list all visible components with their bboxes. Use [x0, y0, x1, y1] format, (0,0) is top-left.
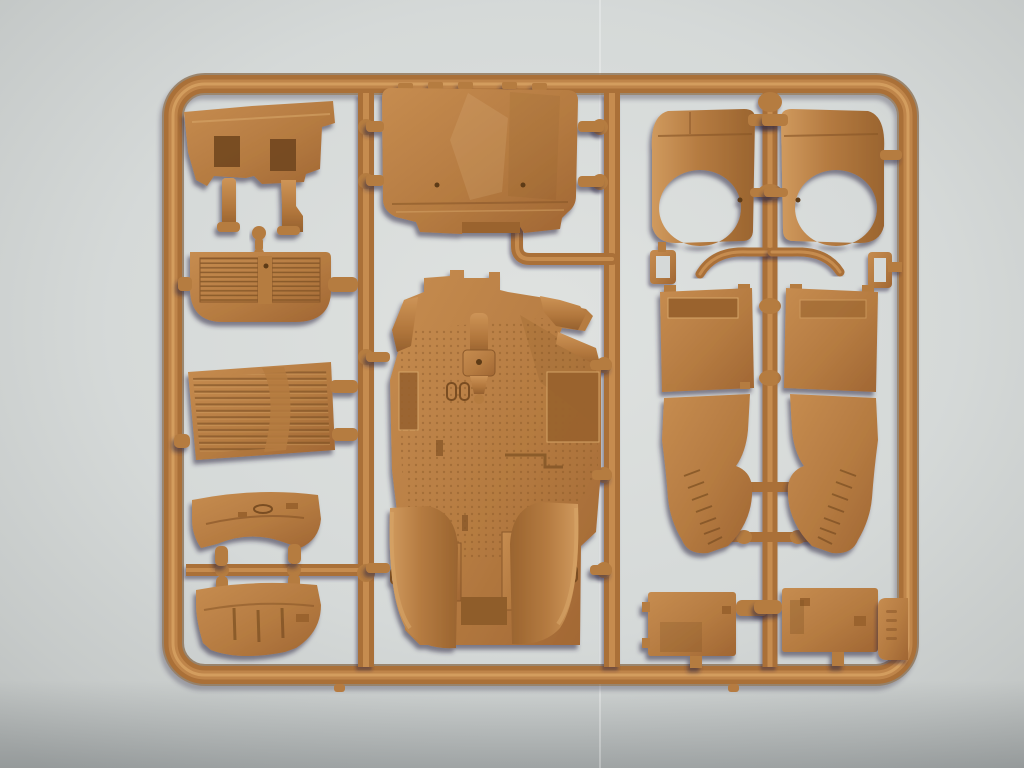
part-side-panel-left	[660, 284, 754, 553]
louver-gate	[332, 428, 358, 441]
firewall-opening	[214, 136, 240, 167]
center-recess	[461, 597, 507, 625]
firewall-foot	[277, 226, 300, 235]
fender-gate	[880, 150, 902, 160]
chassis-tick	[436, 440, 443, 456]
panel-tab	[664, 285, 676, 292]
hatch-gate	[690, 656, 702, 668]
grille-slats-right	[272, 258, 320, 302]
hatch-hinge	[642, 638, 650, 648]
grille-gate	[328, 277, 358, 292]
louver-gate	[174, 434, 190, 448]
hatch-gate	[832, 652, 844, 666]
body-gate	[578, 121, 604, 132]
part-side-panel-right	[784, 284, 878, 553]
gate-knob	[759, 298, 781, 314]
body-tab	[502, 82, 517, 89]
panel-right-slot	[800, 300, 866, 318]
chassis-gate	[592, 470, 612, 480]
chassis-wheelbox-right	[547, 372, 599, 442]
firewall-opening	[270, 139, 296, 171]
body-gate	[578, 176, 604, 187]
body-gate	[366, 121, 384, 132]
hull-lower-rib	[234, 608, 235, 640]
panel-tab	[666, 384, 676, 391]
chassis-gate	[590, 360, 612, 370]
gate-nub	[728, 684, 739, 692]
sprue	[173, 82, 908, 692]
body-hole	[521, 183, 526, 188]
body-gate	[366, 175, 384, 186]
fender-gate	[762, 114, 788, 126]
shackle-right-hole	[874, 258, 886, 282]
part-louvered-panel	[174, 362, 358, 460]
hull-gate	[288, 544, 301, 564]
fender-fr-hole	[796, 198, 801, 203]
panel-left-slot	[668, 298, 738, 318]
louver-slats	[193, 369, 330, 453]
body-tab	[458, 82, 473, 89]
chassis-gate	[590, 565, 612, 575]
chassis-gate	[366, 352, 390, 362]
grille-slats-left	[200, 258, 258, 302]
part-sprue-tag	[878, 598, 908, 660]
gate-knob	[759, 370, 781, 386]
hatch-latch	[854, 616, 866, 626]
steering-ball	[474, 394, 484, 404]
pin-head	[252, 226, 266, 240]
hull-lower-detail	[296, 614, 309, 622]
paper-bottom-shade	[0, 680, 1024, 768]
hatch-latch	[722, 606, 731, 614]
hatch-hinge	[642, 602, 650, 612]
fender-fl-hole	[738, 198, 743, 203]
firewall-leg	[222, 178, 236, 228]
grille-center-bar	[258, 256, 272, 304]
louver-gate	[330, 380, 358, 393]
steering-hole	[476, 359, 482, 365]
panel-tab	[862, 285, 874, 292]
hull-upper-detail	[238, 512, 247, 517]
part-body-shell	[366, 82, 604, 234]
chassis-gate	[366, 563, 390, 573]
photo-of-model-kit-sprue	[0, 0, 1024, 768]
firewall-foot	[217, 222, 240, 232]
hatch-right-recess	[790, 600, 804, 634]
body-step-notch	[462, 222, 520, 233]
steering-column	[470, 313, 488, 355]
sprue-photo-canvas	[0, 0, 1024, 768]
hull-gate	[215, 546, 228, 566]
grille-gate	[178, 277, 192, 291]
part-chassis-tub	[366, 270, 612, 648]
hull-upper-detail	[286, 503, 298, 509]
gate-nub	[334, 684, 345, 692]
grille-hole	[264, 264, 269, 269]
hull-lower-rib	[282, 608, 283, 638]
body-shade	[508, 92, 560, 200]
chassis-wheelbox-left	[399, 372, 418, 430]
body-hole	[435, 183, 440, 188]
hatch-gate	[754, 600, 782, 614]
hull-lower-rib	[258, 610, 259, 642]
shackle-left-hole	[656, 256, 670, 278]
fender-gate	[764, 188, 788, 197]
shackle-stub	[888, 262, 902, 272]
chassis-tick	[462, 515, 468, 531]
body-tab	[428, 82, 443, 89]
shackle-stub	[658, 242, 666, 252]
hatch-left-recess	[660, 622, 702, 652]
panel-tab	[740, 382, 750, 389]
body-tab	[532, 83, 547, 90]
gate-knob	[758, 92, 782, 112]
